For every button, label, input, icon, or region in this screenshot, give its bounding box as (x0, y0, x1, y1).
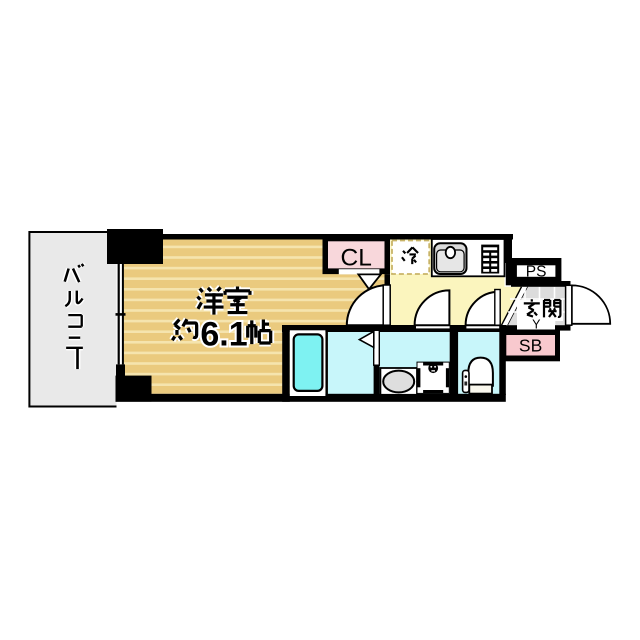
svg-text:SB: SB (519, 336, 542, 356)
svg-text:Y: Y (532, 318, 541, 332)
svg-text:CL: CL (341, 245, 372, 272)
svg-text:PS: PS (526, 263, 547, 280)
svg-text:6.1: 6.1 (200, 316, 247, 354)
